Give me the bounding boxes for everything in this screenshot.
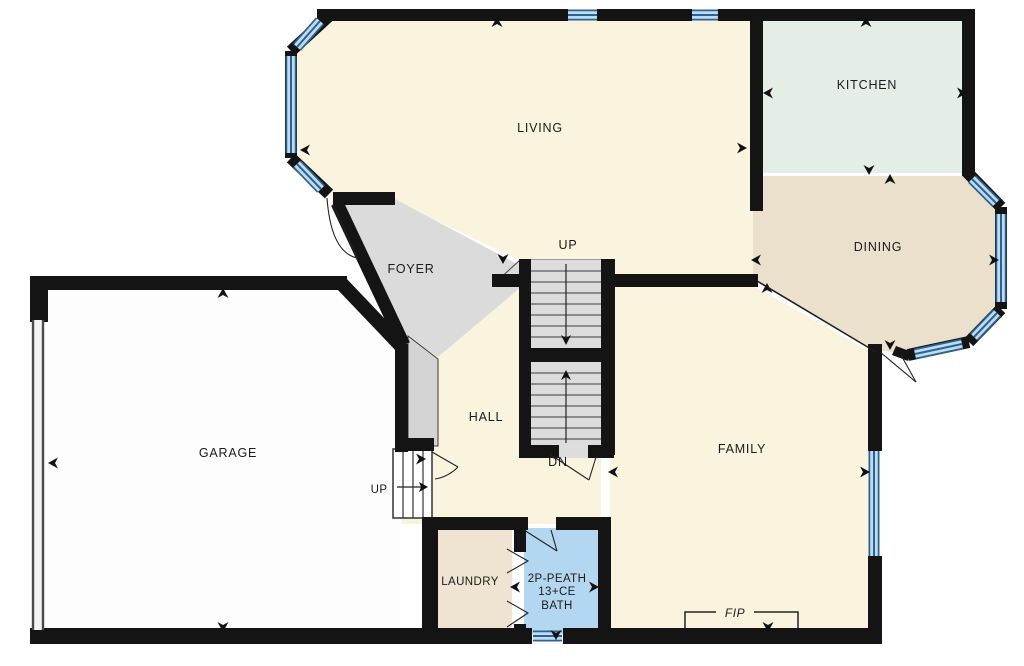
room-label-bath-3: BATH — [541, 600, 572, 612]
room-label-kitchen: KITCHEN — [837, 78, 897, 92]
room-label-hall: HALL — [469, 410, 503, 424]
garage-staircase — [393, 449, 432, 518]
room-label-bath-2: 13+CE — [538, 586, 575, 598]
wall — [750, 14, 763, 211]
wall — [556, 517, 601, 530]
wall — [422, 524, 438, 637]
room-label-bath-1: 2P-PEATH — [528, 573, 587, 585]
wall — [30, 628, 532, 644]
room-family-floor — [610, 287, 875, 628]
wall — [492, 274, 521, 287]
wall — [605, 274, 758, 287]
wall — [317, 9, 568, 21]
wall — [868, 556, 882, 638]
room-label-garage: GARAGE — [199, 446, 257, 460]
wall — [563, 628, 882, 644]
garage-stairs-up-label: UP — [371, 484, 388, 496]
floor-plan-svg: LIVING KITCHEN DINING FOYER HALL GARAGE … — [0, 0, 1024, 666]
wall — [597, 9, 692, 21]
fireplace-label: FIP — [725, 606, 745, 620]
wall — [30, 276, 347, 290]
wall — [395, 344, 408, 452]
room-label-laundry: LAUNDRY — [441, 576, 499, 588]
wall — [598, 517, 611, 639]
wall — [588, 445, 614, 458]
room-label-foyer: FOYER — [387, 262, 434, 276]
room-garage-floor — [44, 290, 400, 630]
wall — [524, 348, 608, 362]
wall — [402, 438, 434, 451]
floor-plan-page: LIVING KITCHEN DINING FOYER HALL GARAGE … — [0, 0, 1024, 666]
wall — [514, 528, 526, 552]
wall — [868, 344, 882, 451]
room-label-dining: DINING — [854, 240, 903, 254]
stairs-dn-label: DN — [548, 455, 568, 469]
stairs-up-label: UP — [559, 238, 578, 252]
garage-left-screen-wall — [33, 320, 43, 630]
room-label-family: FAMILY — [718, 442, 766, 456]
room-kitchen-floor — [763, 18, 962, 173]
room-label-living: LIVING — [517, 121, 563, 135]
